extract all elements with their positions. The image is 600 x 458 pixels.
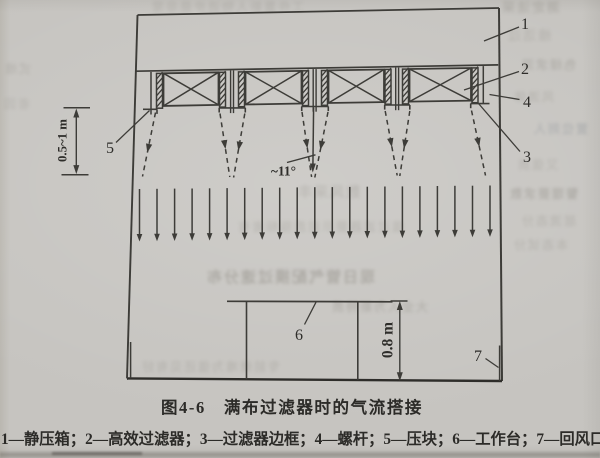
svg-text:0.8 m: 0.8 m — [380, 322, 397, 358]
svg-text:6: 6 — [295, 327, 303, 344]
svg-text:7: 7 — [474, 348, 482, 365]
svg-text:3: 3 — [523, 149, 531, 166]
svg-text:2: 2 — [521, 61, 529, 78]
svg-text:0.5~1 m: 0.5~1 m — [56, 119, 70, 162]
svg-text:4: 4 — [523, 94, 531, 111]
svg-text:1: 1 — [521, 16, 529, 33]
svg-text:~11°: ~11° — [271, 164, 296, 179]
svg-text:5: 5 — [106, 140, 114, 157]
